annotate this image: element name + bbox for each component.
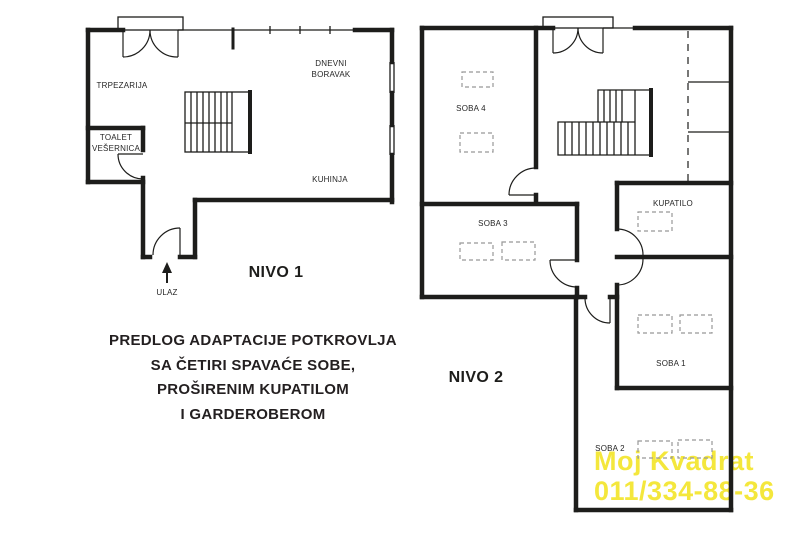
plan-description: PREDLOG ADAPTACIJE POTKROVLJA SA ČETIRI … <box>88 329 418 427</box>
soba4-door <box>509 168 536 195</box>
label-trpezarija: TRPEZARIJA <box>97 81 148 90</box>
nivo2-staircase <box>558 90 652 155</box>
label-nivo2: NIVO 2 <box>449 369 504 386</box>
nivo2-walls <box>422 28 731 510</box>
floor-plan-page: Moj Kvadrat 011/334-88-36 <box>0 0 800 533</box>
label-toalet-line2: VEŠERNICA <box>92 144 140 153</box>
soba3-door <box>550 260 577 287</box>
label-kuhinja: KUHINJA <box>312 175 348 184</box>
nivo2-terrace-double-door <box>553 28 603 53</box>
garderober-closets <box>688 31 729 181</box>
nivo1-plan: TRPEZARIJA DNEVNI BORAVAK TOALET VEŠERNI… <box>88 17 394 297</box>
label-nivo1: NIVO 1 <box>249 264 304 281</box>
soba2-door <box>585 298 610 323</box>
label-kupatilo: KUPATILO <box>653 199 693 208</box>
soba1-door <box>617 259 643 285</box>
label-soba2: SOBA 2 <box>595 444 625 453</box>
nivo1-windows <box>178 26 394 155</box>
ulaz-arrow-icon <box>162 262 172 283</box>
label-soba4: SOBA 4 <box>456 104 486 113</box>
nivo1-staircase <box>185 92 250 152</box>
nivo2-plan: SOBA 4 SOBA 3 KUPATILO SOBA 1 SOBA 2 NIV… <box>422 17 731 510</box>
description-line-2: SA ČETIRI SPAVAĆE SOBE, <box>88 354 418 379</box>
nivo1-ulaz-door <box>153 228 180 255</box>
label-ulaz: ULAZ <box>156 288 177 297</box>
description-line-1: PREDLOG ADAPTACIJE POTKROVLJA <box>88 329 418 354</box>
description-line-3: PROŠIRENIM KUPATILOM <box>88 378 418 403</box>
nivo1-porch <box>118 17 183 30</box>
nivo1-toalet-door <box>118 154 143 179</box>
label-dnevni-boravak-line1: DNEVNI <box>315 59 346 68</box>
label-toalet-line1: TOALET <box>100 133 132 142</box>
nivo1-entrance-double-door <box>123 30 178 57</box>
description-line-4: I GARDEROBEROM <box>88 403 418 428</box>
label-dnevni-boravak-line2: BORAVAK <box>312 70 351 79</box>
label-soba1: SOBA 1 <box>656 359 686 368</box>
floor-plan-svg: TRPEZARIJA DNEVNI BORAVAK TOALET VEŠERNI… <box>0 0 800 533</box>
kupatilo-door <box>617 229 643 255</box>
label-soba3: SOBA 3 <box>478 219 508 228</box>
